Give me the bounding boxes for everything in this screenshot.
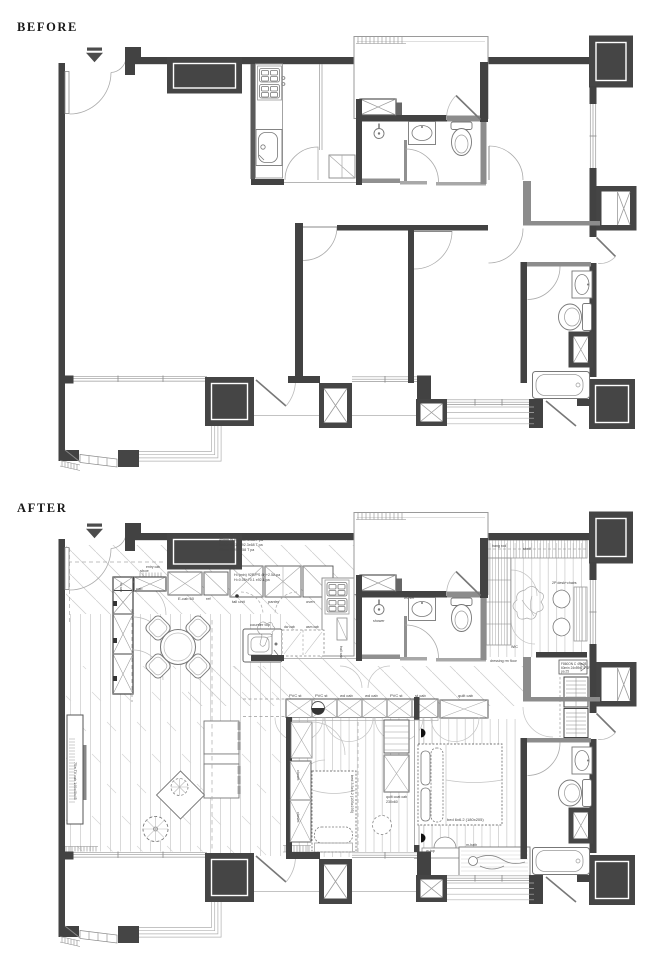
svg-text:entry cab: entry cab [146, 565, 160, 569]
svg-text:W.Cabinet+K/F 93CM: W.Cabinet+K/F 93CM [219, 533, 254, 537]
svg-text:2P desk+chairs: 2P desk+chairs [552, 581, 577, 585]
svg-text:closet: closet [296, 812, 301, 823]
svg-text:hang rod: hang rod [492, 544, 506, 548]
svg-text:H=62+T0.1 4x92.3x68 T pa: H=62+T0.1 4x92.3x68 T pa [219, 543, 263, 547]
svg-text:wd cab: wd cab [340, 693, 353, 698]
svg-text:st cab: st cab [119, 583, 123, 592]
svg-text:cab: cab [136, 586, 143, 591]
svg-text:wc set: wc set [404, 596, 414, 600]
svg-text:PVC st: PVC st [390, 693, 403, 698]
svg-text:counter top: counter top [250, 622, 271, 627]
svg-text:quilt coat cab: quilt coat cab [386, 795, 407, 799]
svg-text:PVC st: PVC st [315, 693, 328, 698]
svg-text:40mm SUS 4x62.3x68.7 pa: 40mm SUS 4x62.3x68.7 pa [219, 538, 263, 542]
svg-text:asm cab: asm cab [306, 625, 319, 629]
svg-text:PVC st: PVC st [289, 693, 302, 698]
svg-text:40mm SUS 3x58 T pa: 40mm SUS 3x58 T pa [219, 548, 254, 552]
svg-text:st cab: st cab [415, 693, 426, 698]
svg-text:shelf: shelf [523, 547, 531, 551]
svg-text:closet: closet [296, 770, 301, 781]
svg-text:dressing rm floor: dressing rm floor [490, 659, 518, 663]
svg-text:quilt cab: quilt cab [458, 693, 474, 698]
svg-text:wd cab: wd cab [365, 693, 378, 698]
svg-text:dw cab: dw cab [284, 625, 295, 629]
svg-text:tall unit: tall unit [232, 599, 246, 604]
svg-text:BEFORE: BEFORE [17, 20, 78, 34]
svg-text:H=(min) 92R/PS 4H+2.5A pa: H=(min) 92R/PS 4H+2.5A pa [234, 573, 280, 577]
svg-text:AFTER: AFTER [17, 501, 67, 515]
svg-text:pantry: pantry [268, 599, 279, 604]
svg-text:oven: oven [306, 599, 315, 604]
svg-text:75in TV cab 140x40x45: 75in TV cab 140x40x45 [73, 762, 77, 800]
svg-text:H=0.05+70.1 x92.1 pa: H=0.05+70.1 x92.1 pa [234, 578, 270, 582]
svg-text:bed 3.5x6.2 (105x195): bed 3.5x6.2 (105x195) [350, 775, 354, 814]
svg-text:m-bath: m-bath [466, 843, 477, 847]
svg-text:shower: shower [373, 619, 385, 623]
svg-text:230x60: 230x60 [386, 800, 398, 804]
svg-text:E-cab 60: E-cab 60 [178, 596, 195, 601]
svg-text:hall cab: hall cab [339, 646, 343, 658]
svg-text:dn cab: dn cab [168, 565, 178, 569]
svg-text:pa 25: pa 25 [561, 670, 569, 674]
svg-text:bed 6x6.2 (180x205): bed 6x6.2 (180x205) [447, 817, 484, 822]
svg-text:w-top: w-top [426, 849, 435, 853]
svg-text:WIC: WIC [511, 645, 518, 649]
